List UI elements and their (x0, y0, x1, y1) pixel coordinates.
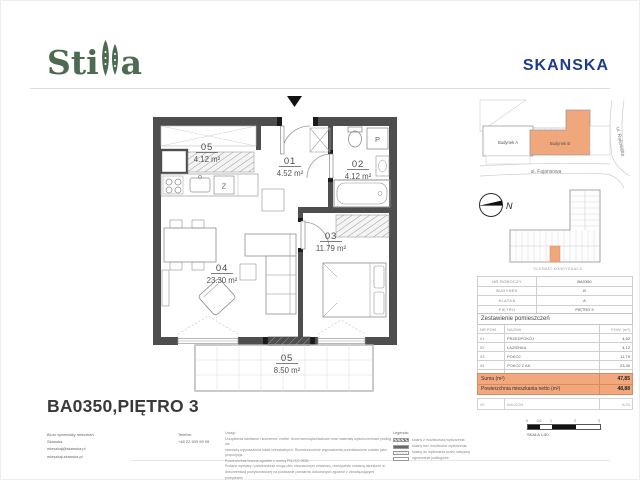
table-row: 04POKÓJ Z AK.23,30 (477, 361, 633, 370)
highlighted-unit (550, 246, 560, 262)
chair (170, 220, 182, 228)
site-map: Budynek A Budynek B ul. Fajansowa ul. Ra… (478, 98, 636, 194)
bathtub (334, 180, 390, 207)
sofa-chaise (245, 234, 296, 256)
rooms-table: Zestawienie pomieszczeń NR POM. NAZWA PO… (477, 313, 633, 379)
building-b (530, 110, 590, 155)
skanska-logo: SKANSKA (523, 57, 609, 75)
toilet (349, 131, 362, 147)
chair (192, 262, 204, 270)
stilla-logo-text-prefix: Sti (47, 43, 99, 82)
wall-outline-icon (393, 457, 409, 461)
balcony-row: 05 BALKON 8,50 (477, 398, 633, 410)
floor-plan-card: Stia SKANSKA (0, 0, 640, 480)
table-row: KLATKA A (477, 296, 633, 306)
bath-sink (376, 156, 389, 176)
sofa (266, 256, 296, 314)
apartment-title: BA0350,PIĘTRO 3 (47, 396, 199, 417)
schematic-caption: SCHEMAT KONDYGNACJI (533, 267, 582, 271)
dining-table (164, 228, 216, 262)
chair (192, 220, 204, 228)
scale-bar: 0 0.5 1 2 3 SKALA 1:50 (527, 419, 623, 437)
room-number: 05 (281, 353, 293, 364)
table-row: 03POKÓJ11,79 (477, 352, 633, 361)
sales-office-block: Biuro sprzedaży mieszkań Skanska mieszka… (47, 431, 94, 460)
table-row: NR ROBOCZY BA0350 (477, 276, 633, 287)
room-number: 02 (352, 159, 364, 170)
dishwasher-label: Z (222, 182, 227, 191)
tv-unit (162, 270, 169, 306)
windows (178, 337, 365, 346)
legend-item: ściany z możliwością wyburzenia (393, 438, 470, 443)
phone-block: Telefon: +48 22 509 99 99 (178, 431, 209, 445)
room-number: 04 (216, 263, 228, 274)
street-line (480, 173, 624, 188)
legend-item: ściany do wykonania przez nabywcę (393, 450, 470, 455)
header-divider (30, 88, 610, 89)
side-table (262, 189, 284, 211)
wall-hatched-icon (393, 438, 409, 442)
table-row: 02ŁAZIENKA4,12 (477, 343, 633, 352)
kitchen-counter (161, 174, 258, 196)
room-area: 11.79 m² (316, 244, 347, 253)
washer-label: P (375, 135, 380, 144)
closet-niche (161, 150, 187, 173)
legend-item: ściany bez możliwości wyburzenia (393, 444, 470, 449)
room-area: 4.12 m² (194, 155, 221, 164)
apartment-floor-plan: Z P (150, 94, 406, 400)
room-area: 4.12 m² (345, 172, 372, 181)
building-a-label: Budynek A (498, 140, 518, 145)
wall-solid-icon (393, 445, 409, 449)
stilla-logo: Stia (47, 38, 142, 83)
street-fajansowa-label: ul. Fajansowa (531, 169, 562, 175)
living-furniture (162, 189, 296, 316)
stilla-logo-text-suffix: a (121, 43, 142, 82)
room-area: 4.52 m² (277, 169, 304, 178)
room-number: 03 (325, 231, 337, 242)
email-link[interactable]: mieszkaj@skanska.pl (47, 445, 94, 452)
chair (170, 262, 182, 270)
hall-cabinet (310, 128, 330, 152)
summary-row: Powierzchnia mieszkania netto (m²) 48,88 (477, 385, 633, 396)
phone-number[interactable]: +48 22 509 99 99 (178, 438, 209, 445)
bed (323, 263, 386, 317)
room-number: 05 (201, 142, 213, 153)
notes-block: Uwagi: Urządzenia sanitarne i kuchenne, … (225, 431, 393, 480)
unit-info-table: NR ROBOCZY BA0350 BUDYNEK B KLATKA A PIĘ… (477, 276, 633, 315)
legend-block: Legenda: ściany z możliwością wyburzenia… (393, 431, 470, 463)
room-number: 01 (284, 156, 296, 167)
summary-row: Suma (m²) 47,85 (477, 373, 633, 385)
coffee-table (240, 264, 256, 280)
room-area: 8.50 m² (274, 366, 301, 375)
floor-schematic: SCHEMAT KONDYGNACJI (486, 188, 636, 272)
legend-item: ogrzewanie podłogowe (393, 456, 470, 461)
wall-light-icon (393, 451, 409, 455)
building-b-label: Budynek B (550, 141, 570, 146)
area-summary: Suma (m²) 47,85 Powierzchnia mieszkania … (477, 373, 633, 395)
balcony-door (268, 337, 310, 346)
scale-bar-segments (527, 424, 601, 430)
bedroom-wardrobe (336, 215, 389, 237)
rooms-table-title: Zestawienie pomieszczeń (477, 313, 633, 325)
entrance-marker-icon (287, 96, 302, 107)
scale-label: SKALA 1:50 (527, 432, 623, 437)
leaf-icon (98, 38, 122, 80)
room-area: 23.30 m² (207, 276, 238, 285)
scale-ticks: 0 0.5 1 2 3 (527, 419, 623, 424)
table-row: 01PRZEDPOKÓJ4,52 (477, 334, 633, 343)
website-link[interactable]: mieszkaj.skanska.pl (47, 453, 94, 460)
window-swing-marks (178, 316, 365, 334)
rooms-table-header: NR POM. NAZWA POW. (m²) (477, 325, 633, 334)
street-rakowska-label: ul. Rakowska (614, 127, 625, 158)
table-row: BUDYNEK B (477, 287, 633, 297)
